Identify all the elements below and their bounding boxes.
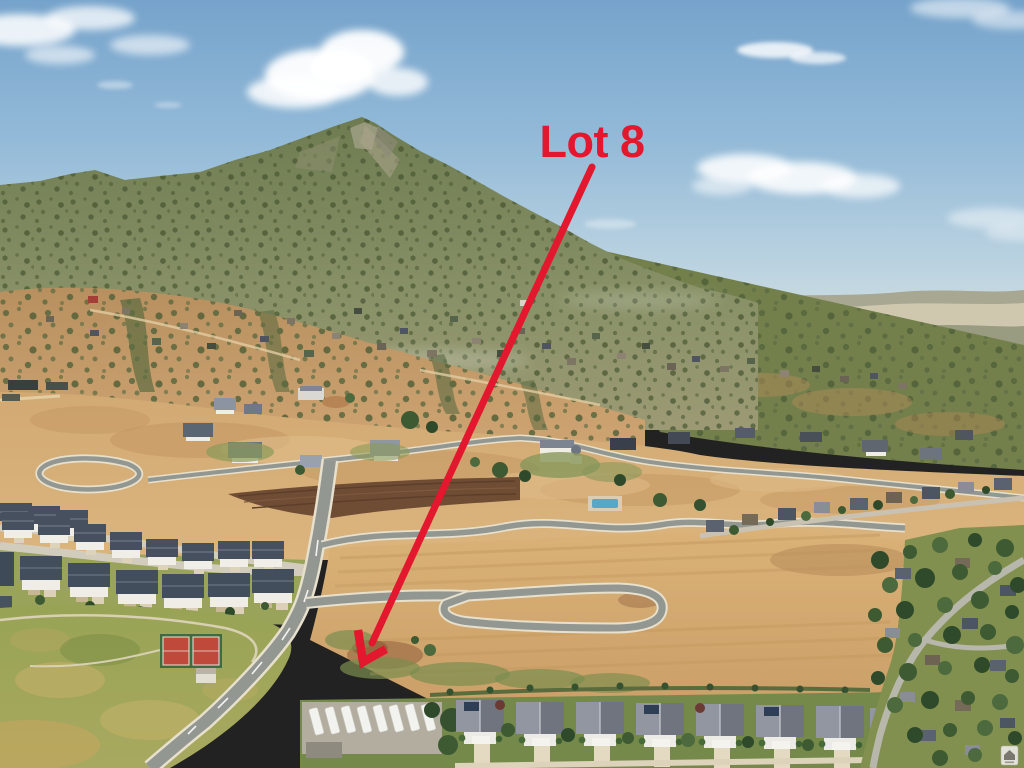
- pavilion: [196, 668, 216, 683]
- estate-house: [668, 432, 690, 444]
- solar-panel: [764, 707, 779, 716]
- solar-panel: [644, 705, 659, 714]
- estate-house: [298, 386, 324, 400]
- rv-storage-lot: [302, 702, 442, 758]
- aerial-photo-canvas: Lot 8: [0, 0, 1024, 768]
- estate-house: [244, 404, 262, 414]
- estate-house: [183, 423, 213, 441]
- estate-house: [300, 455, 322, 467]
- estate-house: [735, 428, 755, 438]
- estate-house: [214, 398, 236, 414]
- estate-house: [800, 432, 822, 442]
- aerial-listing-photo: Lot 8: [0, 0, 1024, 768]
- pickleball-courts: [160, 634, 222, 668]
- estate-house: [920, 448, 942, 460]
- solar-panel: [464, 702, 479, 711]
- watermark-icon: [1001, 746, 1018, 765]
- estate-house: [610, 438, 636, 450]
- estate-house: [955, 430, 973, 440]
- pool: [588, 496, 622, 511]
- lot-label: Lot 8: [540, 116, 645, 167]
